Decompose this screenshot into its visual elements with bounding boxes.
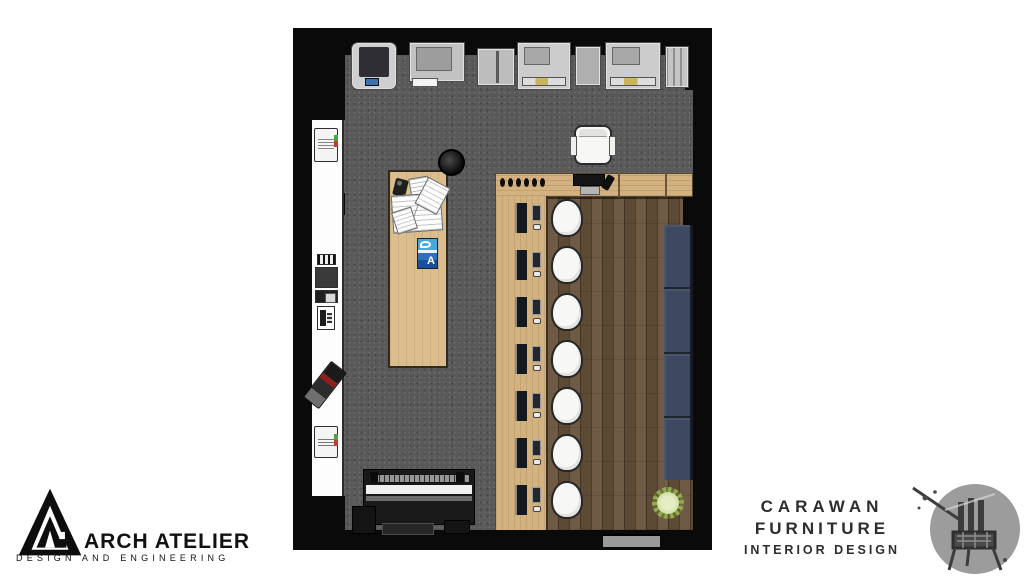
office-chair (574, 125, 612, 165)
chair-armrest (570, 136, 577, 156)
stool (551, 387, 583, 425)
counter-hole-icon (508, 178, 513, 187)
workstation (513, 433, 587, 473)
arch-atelier-name: ARCH ATELIER (84, 530, 250, 554)
floor-plan: A (293, 28, 712, 550)
workstation (513, 245, 587, 285)
monitor-icon (515, 391, 527, 421)
page: A ARCH ATELIER DESIGN AND ENGINEERING CA… (0, 0, 1024, 576)
workstation (513, 386, 587, 426)
carawan-logo-icon (905, 480, 1024, 576)
mouse-icon (533, 224, 541, 230)
small-equipment-icon (315, 290, 338, 303)
counter-hole-icon (516, 178, 521, 187)
mouse-icon (533, 506, 541, 512)
angled-machine-icon (313, 360, 339, 408)
magazine-letter: A (427, 256, 435, 267)
monitor-icon (515, 344, 527, 374)
counter-seam (618, 173, 620, 197)
plotter-knob (370, 472, 378, 482)
office-machine-icon (409, 42, 465, 82)
keyboard-icon (532, 299, 541, 315)
office-machine-icon (575, 46, 601, 86)
office-machine-icon (665, 46, 689, 88)
office-machine-icon (517, 42, 571, 90)
entrance-door (603, 534, 660, 547)
round-stool (438, 149, 465, 176)
sofa-cushion (664, 289, 690, 353)
keyboard-icon (532, 440, 541, 456)
counter-holes (500, 178, 545, 187)
sofa-bench (664, 225, 693, 480)
sofa-cushion (664, 418, 690, 480)
plotter-band (366, 496, 472, 501)
mouse-icon (533, 412, 541, 418)
mouse-icon (533, 459, 541, 465)
stool (551, 481, 583, 519)
stool (551, 246, 583, 284)
wall-corner-top-left (293, 28, 345, 120)
plotter-knob (456, 472, 464, 482)
keyboard-icon (532, 346, 541, 362)
equipment-row (351, 40, 691, 98)
stool (551, 434, 583, 472)
counter-seam (665, 173, 667, 197)
shelf-device-icon (314, 128, 338, 162)
plotter-foot (444, 520, 470, 534)
counter-hole-icon (532, 178, 537, 187)
mouse-icon (533, 365, 541, 371)
wall-right (693, 28, 712, 550)
stool (551, 199, 583, 237)
plotter-rail (368, 474, 470, 483)
arch-atelier-logo-icon (18, 486, 82, 558)
shelf-device-icon (314, 426, 338, 458)
sofa-cushion (664, 225, 690, 289)
plotter-tray (382, 523, 434, 535)
arch-atelier-tagline: DESIGN AND ENGINEERING (16, 553, 229, 563)
small-equipment-icon (317, 306, 335, 330)
plant (652, 487, 684, 519)
wall-corner-bottom-left (293, 496, 345, 550)
monitor-icon (515, 250, 527, 280)
workstation (513, 480, 587, 520)
counter-hole-icon (540, 178, 545, 187)
carawan-line2: FURNITURE (724, 519, 920, 539)
mouse-icon (533, 318, 541, 324)
plotter-foot (352, 506, 376, 534)
magazine: A (417, 238, 438, 269)
workstation-list (513, 198, 587, 520)
reception-keyboard-icon (580, 186, 600, 195)
carawan-line1: CARAWAN (724, 497, 920, 517)
keyboard-icon (532, 205, 541, 221)
small-equipment-icon (315, 267, 338, 288)
keyboard-icon (532, 393, 541, 409)
office-machine-icon (605, 42, 661, 90)
small-equipment-icon (317, 254, 336, 265)
keyboard-icon (532, 252, 541, 268)
monitor-icon (515, 203, 527, 233)
monitor-icon (515, 485, 527, 515)
office-machine-icon (351, 42, 397, 90)
reception-monitor-icon (573, 174, 605, 186)
sofa-cushion (664, 354, 690, 418)
carawan-wordmark: CARAWAN FURNITURE INTERIOR DESIGN (724, 497, 920, 557)
plotter-paper-band (366, 485, 472, 494)
stool (551, 293, 583, 331)
carawan-line3: INTERIOR DESIGN (724, 543, 920, 557)
chair-armrest (609, 136, 616, 156)
workstation (513, 292, 587, 332)
monitor-icon (515, 297, 527, 327)
office-machine-icon (477, 48, 515, 86)
stool (551, 340, 583, 378)
counter-hole-icon (524, 178, 529, 187)
workstation (513, 339, 587, 379)
mouse-icon (533, 271, 541, 277)
counter-hole-icon (500, 178, 505, 187)
keyboard-icon (532, 487, 541, 503)
monitor-icon (515, 438, 527, 468)
workstation (513, 198, 587, 238)
plotter-printer (363, 469, 475, 525)
